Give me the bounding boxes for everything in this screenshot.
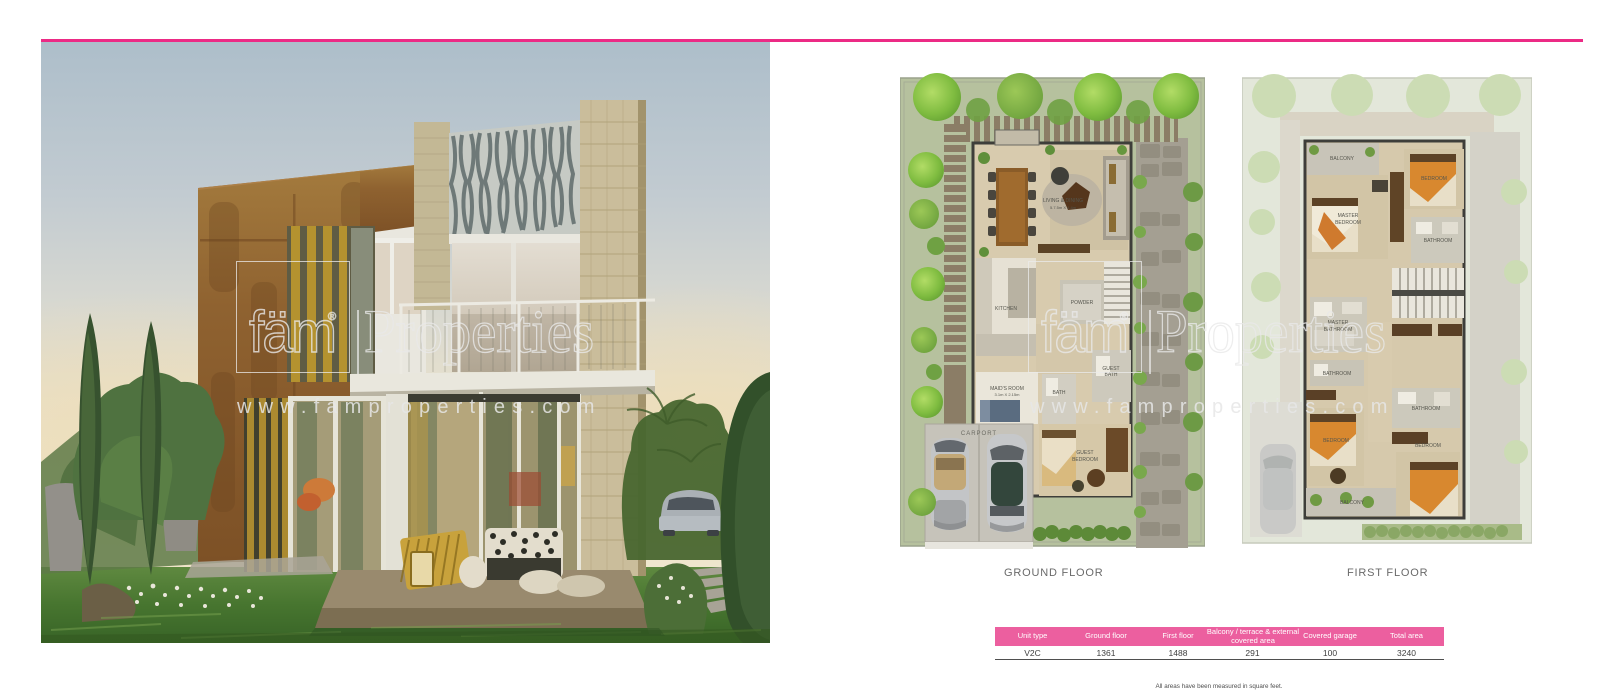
svg-text:3.1m X 2.15m: 3.1m X 2.15m: [995, 392, 1021, 397]
svg-text:KITCHEN: KITCHEN: [995, 306, 1017, 312]
svg-text:BEDROOM: BEDROOM: [1323, 438, 1349, 444]
svg-text:BEDROOM: BEDROOM: [1421, 176, 1447, 182]
svg-text:BEDROOM: BEDROOM: [1072, 457, 1098, 463]
svg-text:BEDROOM: BEDROOM: [1415, 443, 1441, 449]
svg-text:BEDROOM: BEDROOM: [1335, 220, 1361, 226]
svg-text:GUEST: GUEST: [1076, 450, 1093, 456]
svg-text:LIVING & DINING: LIVING & DINING: [1043, 198, 1083, 204]
svg-text:BATHROOM: BATHROOM: [1412, 406, 1441, 412]
svg-text:BALCONY: BALCONY: [1330, 156, 1355, 162]
svg-text:CARPORT: CARPORT: [961, 431, 997, 437]
svg-text:BALCONY: BALCONY: [1340, 500, 1365, 506]
svg-text:BATHROOM: BATHROOM: [1323, 371, 1352, 377]
svg-text:MASTER: MASTER: [1338, 213, 1359, 219]
svg-text:BATHROOM: BATHROOM: [1424, 238, 1453, 244]
svg-text:5.7.5m X 4.4m: 5.7.5m X 4.4m: [1050, 205, 1077, 210]
